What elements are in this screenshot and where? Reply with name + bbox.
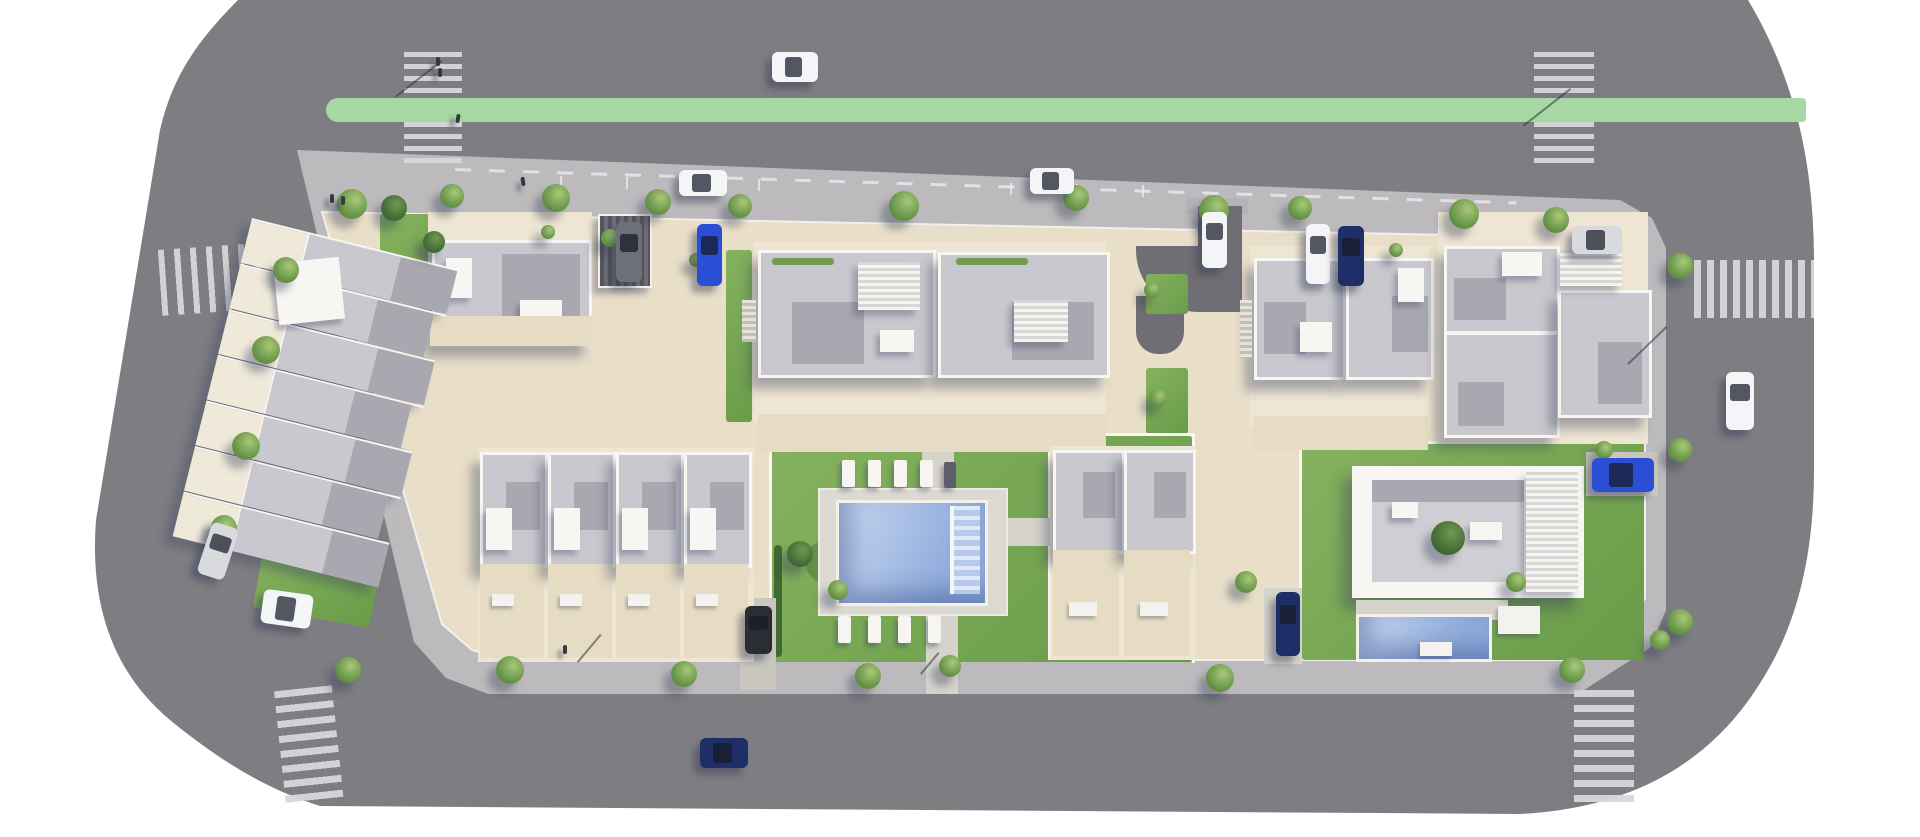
car-driving-right-road: [1726, 372, 1754, 430]
car-parked-bottom-left: [260, 589, 314, 630]
building-4-terrace-band: [1254, 416, 1428, 450]
pedestrian: [438, 68, 442, 77]
villa-outdoor-sofa: [1498, 606, 1540, 634]
pool-steps-edge: [950, 506, 954, 594]
tree: [1668, 438, 1692, 462]
car-parked-carport: [616, 222, 642, 282]
car-on-driveway: [1202, 212, 1227, 268]
villa-roof-band: [1372, 480, 1524, 502]
green-cycle-lane: [326, 98, 1806, 122]
row-unit-table: [560, 594, 582, 606]
building-4-rooftop-box: [1300, 322, 1332, 352]
duplex-unit-table: [1069, 602, 1097, 616]
building-2-patio: [430, 316, 592, 346]
tree: [1235, 571, 1257, 593]
pedestrian: [341, 196, 345, 205]
row-unit-canopy: [554, 508, 580, 550]
car-windshield: [1609, 463, 1633, 486]
row-unit-table: [696, 594, 718, 606]
car-windshield: [749, 616, 768, 630]
tree: [1595, 441, 1613, 459]
car-parked-top-lane-2: [1030, 168, 1074, 194]
car-parked-east-pad: [1592, 458, 1654, 492]
row-unit-patio: [548, 564, 612, 658]
tree: [440, 184, 464, 208]
crosswalk-bottom-left: [274, 685, 344, 808]
sun-lounger: [868, 616, 881, 643]
building-5-roof-nw-dark: [1454, 278, 1506, 320]
pedestrian: [563, 645, 567, 654]
car-driving-top-road: [772, 52, 818, 82]
car-windshield: [713, 743, 731, 763]
car-parked-south-pad: [745, 606, 772, 654]
crosswalk-bottom-right: [1574, 690, 1634, 804]
bush-dark: [1431, 521, 1465, 555]
building-3-pergola: [858, 262, 920, 310]
car-windshield: [692, 174, 710, 192]
building-3-pergola: [1014, 300, 1068, 342]
building-5-roof-east-dark: [1598, 342, 1642, 404]
tree: [1667, 609, 1693, 635]
tree: [232, 432, 260, 460]
car-driving-bottom-road: [700, 738, 748, 768]
building-3-stairs: [742, 300, 756, 342]
building-4-rooftop-box: [1398, 268, 1424, 302]
sun-lounger: [920, 460, 933, 487]
tree: [335, 657, 361, 683]
car-windshield: [1730, 384, 1750, 401]
tree: [541, 225, 555, 239]
car-windshield: [1280, 605, 1297, 624]
site-plan-render: [0, 0, 1920, 837]
parking-bay-line: [1142, 185, 1144, 197]
tree: [889, 191, 919, 221]
tree: [273, 257, 299, 283]
car-parked-building-5: [1572, 226, 1622, 254]
tree: [1449, 199, 1479, 229]
building-4-roof-east-dark: [1392, 296, 1428, 352]
car-windshield: [701, 236, 719, 255]
car-parked-top-lane: [679, 170, 727, 196]
tree: [855, 663, 881, 689]
building-3-roof-planter: [956, 258, 1028, 265]
building-3-roof-planter: [772, 258, 834, 265]
duplex-unit-roof-dark: [1083, 472, 1115, 518]
crosswalk-top-right-lower: [1534, 122, 1594, 170]
tree: [728, 194, 752, 218]
crosswalk-top-left-lower: [404, 122, 462, 170]
pedestrian: [330, 194, 334, 203]
car-windshield: [1342, 238, 1360, 256]
tree: [645, 189, 671, 215]
row-unit-canopy: [622, 508, 648, 550]
row-unit-patio: [684, 564, 748, 658]
terraced-row-part: [322, 531, 389, 588]
sun-lounger: [868, 460, 881, 487]
tree: [252, 336, 280, 364]
row-unit-patio: [616, 564, 680, 658]
car-windshield: [1042, 172, 1059, 190]
tree: [1559, 657, 1585, 683]
villa-rooftop-box: [1392, 502, 1418, 518]
car-parked-building-4-blue: [1338, 226, 1364, 286]
sun-lounger: [928, 616, 941, 643]
tree: [1543, 207, 1569, 233]
bush-dark: [381, 195, 407, 221]
tree: [1288, 196, 1312, 220]
tree: [939, 655, 961, 677]
building-5-roof-sw-dark: [1458, 382, 1504, 426]
row-unit-patio: [480, 564, 544, 658]
parking-bay-line: [758, 179, 760, 191]
car-windshield: [275, 596, 297, 622]
car-windshield: [785, 57, 802, 77]
car-windshield: [1586, 230, 1605, 249]
sun-lounger: [842, 460, 855, 487]
villa-pergola: [1526, 472, 1578, 592]
duplex-unit-table: [1140, 602, 1168, 616]
sun-lounger: [898, 616, 911, 643]
car-parked-building-4: [1306, 224, 1330, 284]
crosswalk-right: [1694, 260, 1814, 318]
sun-lounger: [894, 460, 907, 487]
tree: [1650, 630, 1670, 650]
building-5-rooftop-box: [1502, 252, 1542, 276]
tree: [828, 580, 848, 600]
car-windshield: [1310, 236, 1327, 254]
pedestrian: [436, 57, 440, 66]
row-unit-canopy: [486, 508, 512, 550]
tree: [1149, 389, 1167, 407]
row-unit-table: [628, 594, 650, 606]
sun-lounger-dark: [944, 462, 956, 488]
crosswalk-top-left-upper: [404, 52, 462, 98]
tree: [542, 184, 570, 212]
car-windshield: [620, 234, 638, 252]
tree: [671, 661, 697, 687]
car-parked-villa-path: [1276, 592, 1300, 656]
building-3-rooftop-box: [880, 330, 914, 352]
tree: [1506, 572, 1526, 592]
parking-bay-line: [626, 177, 628, 189]
parking-bay-line: [1010, 183, 1012, 195]
bush-dark: [423, 231, 445, 253]
tree: [496, 656, 524, 684]
villa-rooftop-box: [1470, 522, 1502, 540]
tree: [1206, 664, 1234, 692]
sun-lounger: [838, 616, 851, 643]
building-3-roof-west-dark: [792, 302, 864, 364]
car-windshield: [209, 533, 233, 554]
car-windshield: [1206, 223, 1224, 240]
tree: [1144, 282, 1160, 298]
car-parked-driveway-blue: [697, 224, 722, 286]
row-unit-table: [492, 594, 514, 606]
bush-dark: [787, 541, 813, 567]
row-unit-canopy: [690, 508, 716, 550]
tree: [1667, 253, 1693, 279]
villa-outdoor-table: [1420, 642, 1452, 656]
tree: [1389, 243, 1403, 257]
building-4-stairs: [1240, 300, 1252, 358]
duplex-unit-roof-dark: [1154, 472, 1186, 518]
building-5-pergola: [1560, 250, 1622, 286]
pool-steps: [954, 506, 980, 594]
